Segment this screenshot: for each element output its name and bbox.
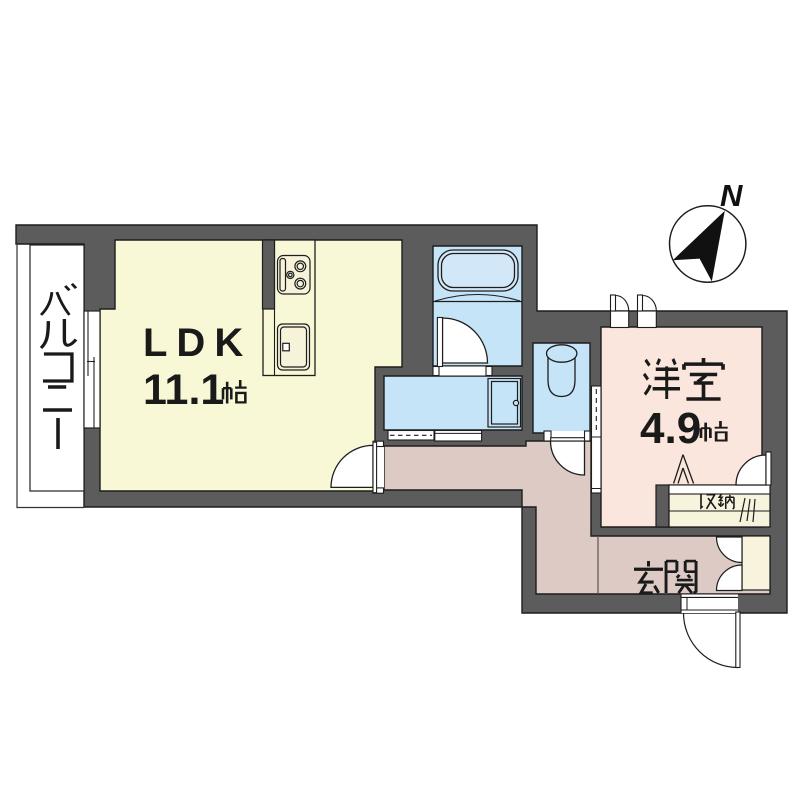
svg-text:N: N <box>720 178 743 213</box>
svg-text:11.1: 11.1 <box>143 366 224 414</box>
svg-text:4.9: 4.9 <box>640 404 701 453</box>
svg-text:LDK: LDK <box>143 321 252 365</box>
